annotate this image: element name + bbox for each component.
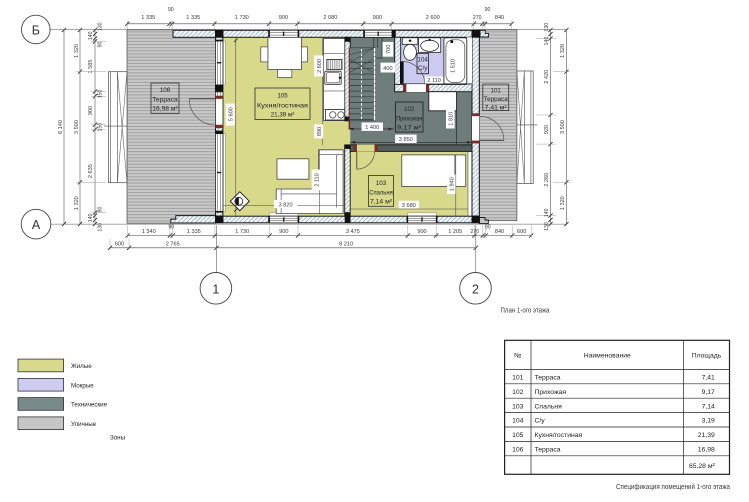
svg-text:С/у: С/у (418, 65, 428, 72)
svg-text:7,14: 7,14 (702, 403, 715, 410)
svg-text:130: 130 (544, 23, 550, 32)
svg-text:90: 90 (98, 207, 104, 213)
svg-text:104: 104 (418, 57, 429, 64)
svg-text:900: 900 (279, 15, 288, 21)
svg-text:С/у: С/у (535, 418, 546, 425)
svg-text:101: 101 (512, 375, 524, 382)
svg-text:90: 90 (168, 7, 174, 13)
svg-text:№: № (514, 353, 521, 360)
svg-text:16,98: 16,98 (698, 447, 715, 454)
svg-text:3 500: 3 500 (74, 120, 80, 134)
svg-text:130: 130 (544, 222, 550, 231)
svg-text:3,19: 3,19 (702, 418, 715, 425)
svg-text:3 475: 3 475 (346, 229, 360, 235)
svg-text:140: 140 (544, 208, 550, 217)
svg-text:21,39 м²: 21,39 м² (271, 112, 295, 119)
svg-text:16,98 м²: 16,98 м² (152, 106, 178, 113)
svg-text:1 810: 1 810 (449, 112, 455, 126)
svg-text:Площадь: Площадь (692, 353, 722, 360)
svg-text:90: 90 (485, 225, 491, 231)
svg-text:900: 900 (373, 15, 382, 21)
svg-text:2 600: 2 600 (426, 15, 440, 21)
svg-text:106: 106 (160, 87, 171, 94)
svg-text:9,17 м²: 9,17 м² (397, 125, 421, 132)
svg-text:Кухня/гостиная: Кухня/гостиная (535, 432, 583, 439)
svg-text:1: 1 (212, 282, 219, 296)
svg-text:3 680: 3 680 (402, 203, 416, 209)
svg-text:1 335: 1 335 (187, 229, 201, 235)
svg-text:106: 106 (512, 447, 524, 454)
svg-text:3 850: 3 850 (399, 137, 413, 143)
svg-text:600: 600 (115, 241, 124, 247)
svg-text:103: 103 (376, 180, 387, 187)
svg-text:Кухня/гостиная: Кухня/гостиная (257, 103, 308, 110)
svg-text:3 820: 3 820 (279, 202, 293, 208)
svg-text:270: 270 (473, 15, 482, 21)
svg-text:Б: Б (32, 23, 40, 37)
svg-text:90: 90 (485, 7, 491, 13)
svg-text:105: 105 (512, 432, 524, 439)
svg-text:1 585: 1 585 (88, 60, 94, 74)
svg-text:7,41 м²: 7,41 м² (485, 104, 507, 111)
svg-text:840: 840 (495, 15, 504, 21)
svg-text:104: 104 (512, 418, 524, 425)
svg-text:140: 140 (88, 213, 94, 222)
svg-text:1 730: 1 730 (235, 15, 249, 21)
svg-text:2 110: 2 110 (315, 173, 321, 187)
svg-text:Спальня: Спальня (369, 189, 393, 196)
svg-text:130: 130 (98, 22, 104, 31)
svg-text:А: А (32, 218, 41, 232)
svg-text:Терраса: Терраса (484, 96, 509, 103)
svg-text:Прихожая: Прихожая (535, 389, 567, 396)
svg-text:Спецификация помещений 1-ого э: Спецификация помещений 1-ого этажа (616, 483, 730, 491)
svg-text:Технические: Технические (71, 402, 108, 409)
svg-text:1 320: 1 320 (560, 196, 566, 210)
svg-text:140: 140 (88, 31, 94, 40)
svg-text:65,28 м²: 65,28 м² (689, 463, 716, 470)
svg-text:3 500: 3 500 (560, 120, 566, 134)
svg-text:Зоны: Зоны (110, 435, 126, 442)
svg-text:1 730: 1 730 (235, 229, 249, 235)
svg-text:105: 105 (277, 93, 288, 100)
svg-text:900: 900 (417, 229, 426, 235)
svg-text:890: 890 (317, 127, 323, 136)
svg-text:1 400: 1 400 (365, 125, 379, 131)
svg-text:150: 150 (97, 89, 103, 98)
svg-text:Терраса: Терраса (152, 97, 178, 104)
svg-text:1 340: 1 340 (142, 229, 156, 235)
svg-text:7,14 м²: 7,14 м² (370, 199, 392, 206)
svg-text:900: 900 (88, 106, 94, 115)
svg-text:1 940: 1 940 (450, 177, 456, 191)
svg-text:1 320: 1 320 (74, 44, 80, 58)
svg-text:7,41: 7,41 (702, 375, 715, 382)
svg-text:Спальня: Спальня (535, 403, 563, 410)
svg-text:Наименование: Наименование (584, 353, 631, 360)
svg-text:Терраса: Терраса (535, 375, 561, 382)
svg-text:2: 2 (472, 282, 479, 296)
svg-text:1 205: 1 205 (448, 229, 462, 235)
svg-text:700: 700 (386, 45, 392, 54)
svg-text:1 335: 1 335 (186, 15, 200, 21)
svg-text:150: 150 (97, 123, 103, 132)
svg-text:1 510: 1 510 (451, 59, 457, 73)
svg-text:2 765: 2 765 (166, 241, 180, 247)
svg-text:План 1-ого этажа: План 1-ого этажа (501, 308, 550, 315)
svg-text:101: 101 (491, 88, 502, 95)
svg-text:90: 90 (168, 225, 174, 231)
svg-text:Жилые: Жилые (71, 363, 92, 370)
svg-text:920: 920 (544, 125, 550, 134)
svg-text:6 140: 6 140 (58, 120, 64, 134)
svg-text:103: 103 (512, 403, 524, 410)
svg-text:2 080: 2 080 (323, 15, 337, 21)
svg-text:600: 600 (517, 229, 526, 235)
svg-text:2 110: 2 110 (427, 78, 441, 84)
svg-text:1 320: 1 320 (74, 196, 80, 210)
svg-text:140: 140 (544, 37, 550, 46)
svg-text:840: 840 (495, 229, 504, 235)
svg-text:5 600: 5 600 (229, 107, 235, 121)
svg-text:9,17: 9,17 (702, 389, 715, 396)
svg-text:2 600: 2 600 (317, 59, 323, 73)
svg-text:2 635: 2 635 (88, 164, 94, 178)
svg-text:Терраса: Терраса (535, 447, 561, 454)
svg-text:21,39: 21,39 (698, 432, 715, 439)
svg-text:1 335: 1 335 (141, 15, 155, 21)
svg-text:2 260: 2 260 (544, 173, 550, 187)
svg-text:900: 900 (279, 229, 288, 235)
svg-text:Уличные: Уличные (71, 421, 97, 428)
svg-text:102: 102 (404, 106, 415, 113)
svg-text:2 420: 2 420 (544, 70, 550, 84)
svg-text:400: 400 (383, 66, 392, 72)
svg-text:Прихожая: Прихожая (396, 116, 422, 123)
svg-text:90: 90 (98, 42, 104, 48)
svg-text:102: 102 (512, 389, 524, 396)
svg-text:8 210: 8 210 (339, 241, 353, 247)
svg-text:Мокрые: Мокрые (71, 382, 94, 389)
svg-text:1 320: 1 320 (560, 44, 566, 58)
svg-text:270: 270 (470, 229, 479, 235)
